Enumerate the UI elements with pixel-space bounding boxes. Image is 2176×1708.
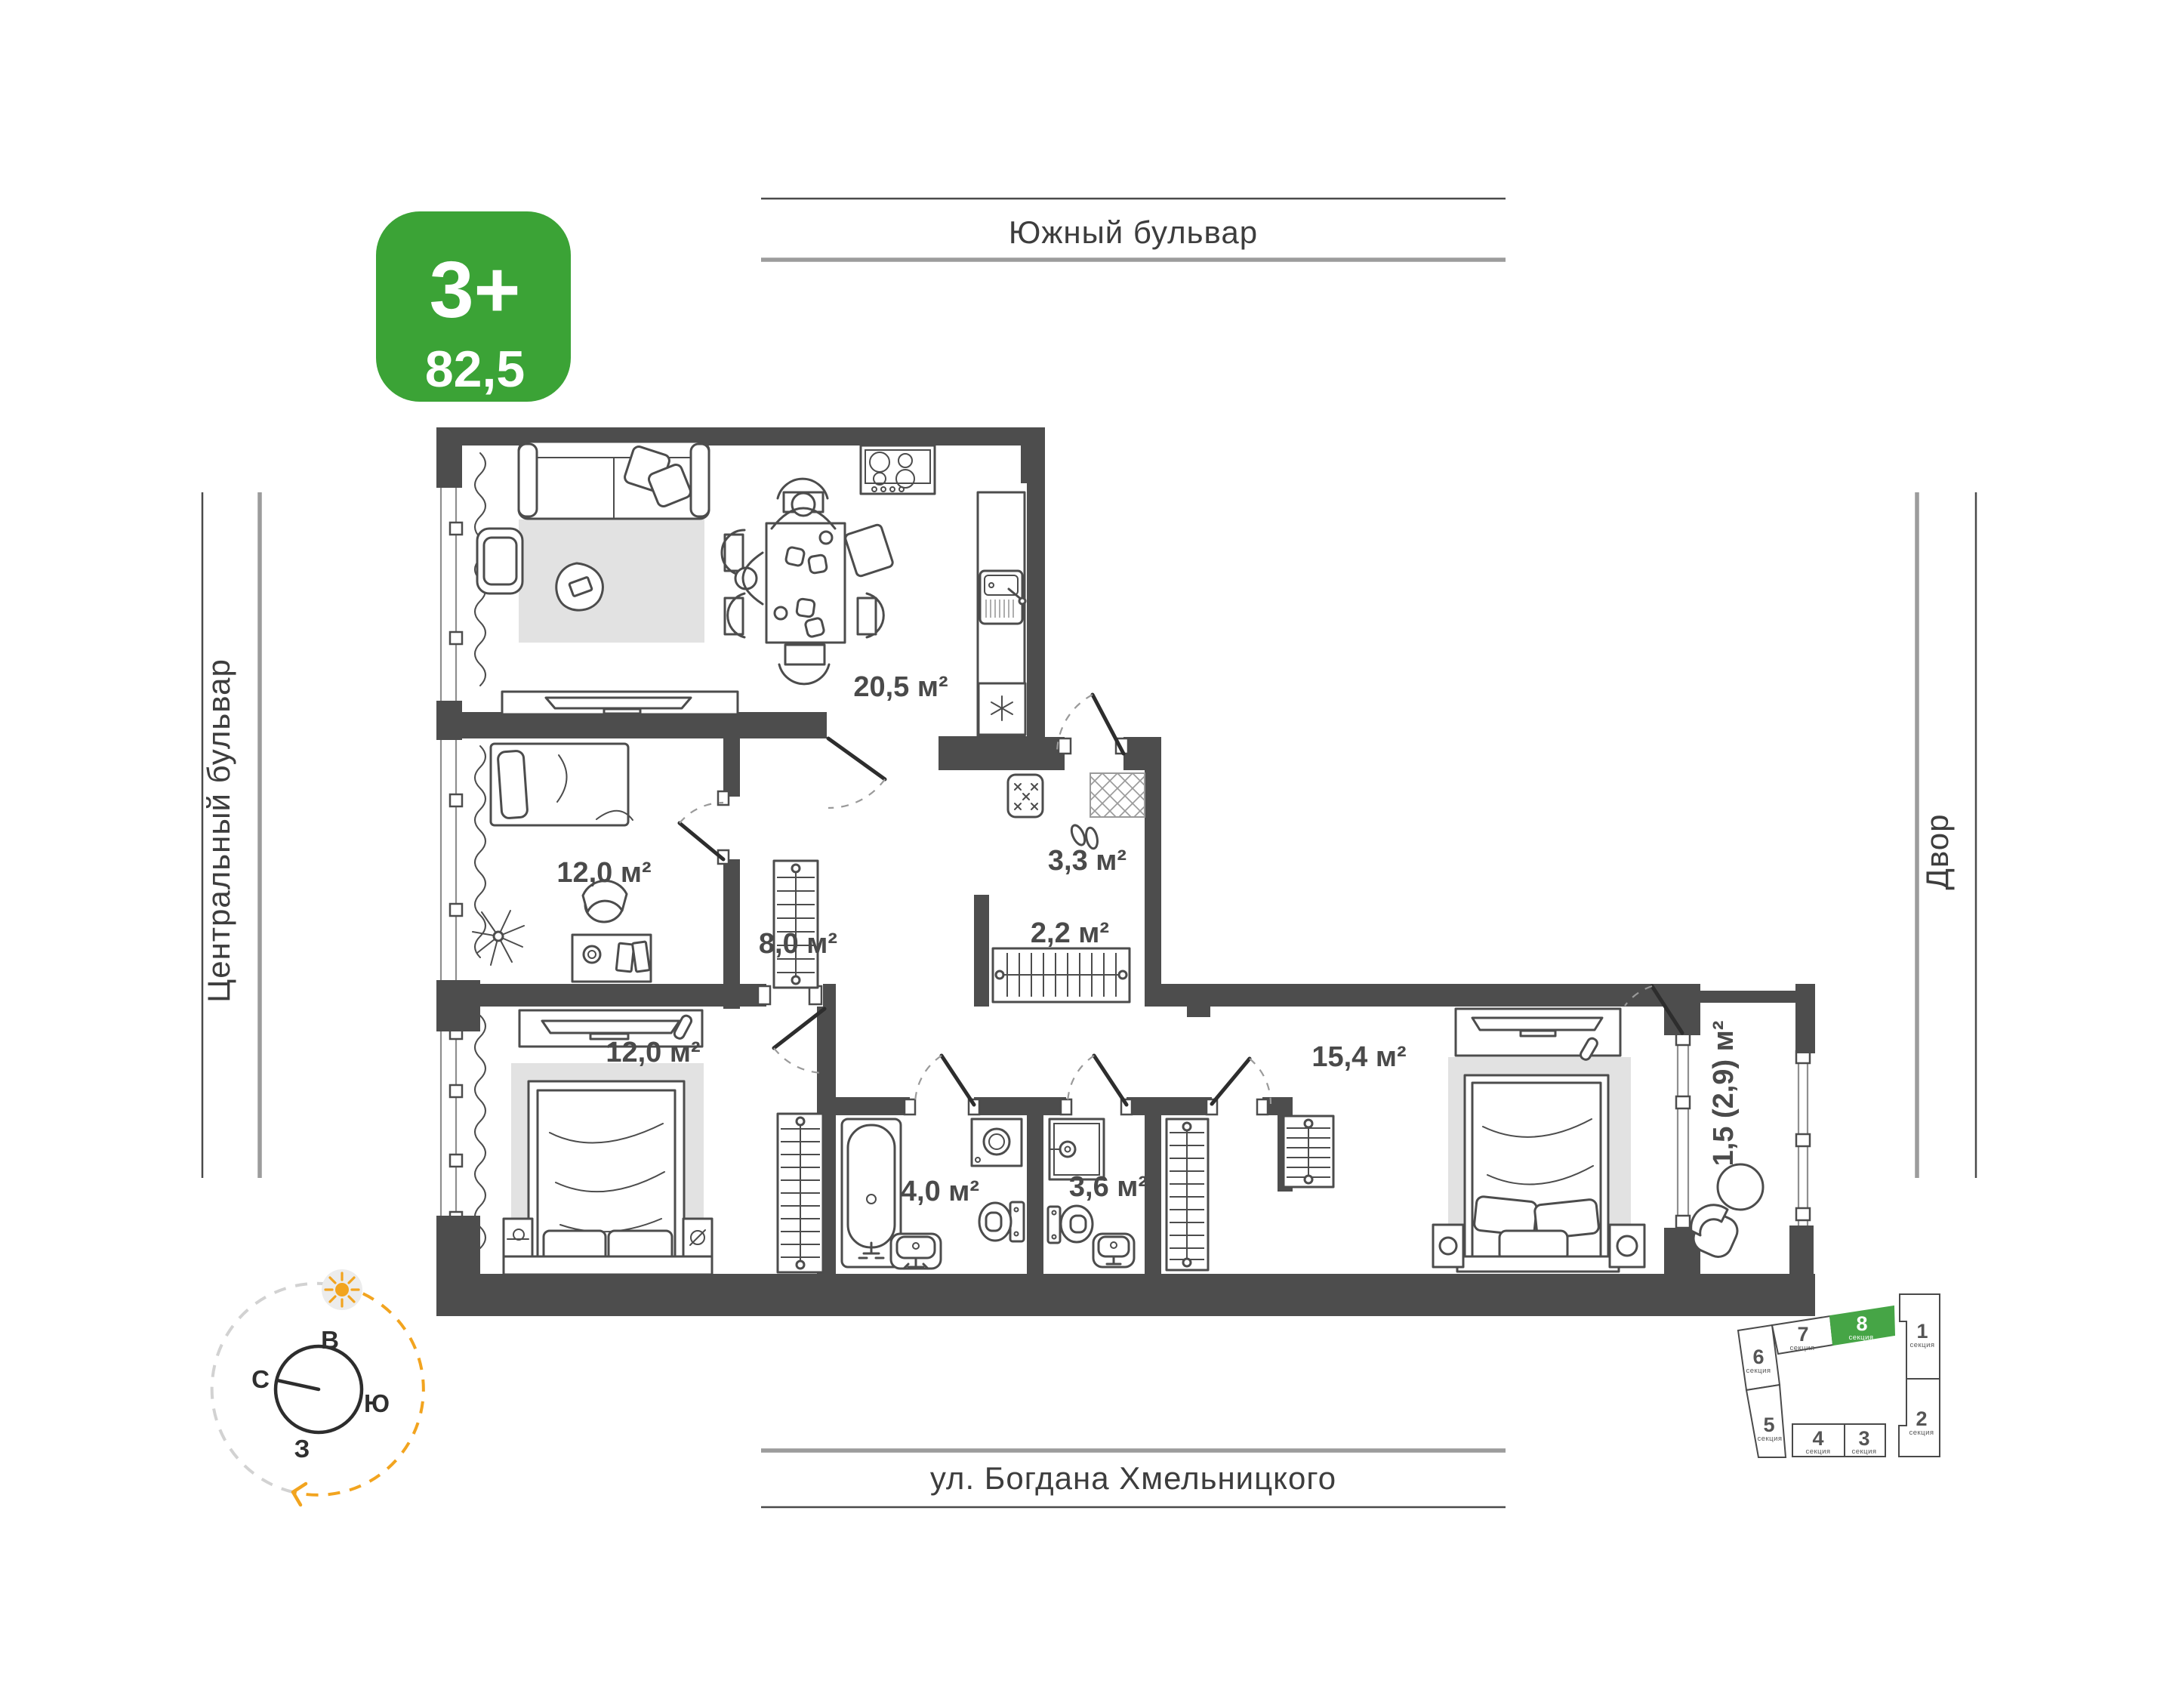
street-right-label: Двор [1919, 813, 1955, 889]
compass-south: Ю [364, 1389, 390, 1417]
pouf-icon [1008, 775, 1043, 817]
room-label-balcony: 1,5 (2,9) м² [1708, 1021, 1740, 1167]
fridge-icon [979, 683, 1025, 735]
apartment-badge: 3+ 82,5 [376, 211, 571, 402]
kitchen-sink-icon [980, 571, 1025, 624]
section-2-number: 2 [1916, 1407, 1927, 1430]
section-3-number: 3 [1858, 1427, 1869, 1450]
living-rug [519, 519, 704, 643]
floor-plan-page: Южный бульвар ул. Богдана Хмельницкого Ц… [0, 0, 2176, 1708]
wardrobe-bedroom2-icon [778, 1114, 823, 1272]
tv-console-living [502, 692, 738, 714]
shower-icon [1049, 1119, 1104, 1179]
street-left-label: Центральный бульвар [201, 658, 236, 1003]
section-1-number: 1 [1916, 1320, 1928, 1343]
section-8-word: секция [1848, 1333, 1873, 1342]
street-top-label: Южный бульвар [1009, 214, 1258, 250]
section-5-word: секция [1757, 1435, 1782, 1443]
section-8-number: 8 [1856, 1312, 1867, 1335]
section-2-word: секция [1909, 1429, 1934, 1437]
double-bed-bedroom2 [504, 1081, 712, 1275]
street-top: Южный бульвар [761, 199, 1506, 260]
street-bottom-label: ул. Богдана Хмельницкого [930, 1460, 1336, 1496]
section-3-word: секция [1851, 1447, 1876, 1456]
section-4-number: 4 [1812, 1427, 1823, 1450]
compass-north: С [251, 1365, 270, 1393]
coffee-table-icon [556, 563, 603, 610]
section-6-number: 6 [1752, 1346, 1764, 1368]
street-right: Двор [1917, 492, 1976, 1178]
badge-area-value: 82,5 [425, 341, 525, 398]
section-6-word: секция [1746, 1367, 1771, 1375]
room-label-wardrobe: 2,2 м² [1031, 917, 1109, 949]
stove-icon [861, 445, 935, 494]
street-bottom: ул. Богдана Хмельницкого [761, 1451, 1506, 1507]
dining-table-icon [722, 479, 894, 684]
room-label-bedroom-1: 12,0 м² [556, 857, 651, 889]
section-1-word: секция [1909, 1341, 1934, 1349]
sun-icon [322, 1269, 362, 1310]
balcony-furniture [1689, 1164, 1763, 1261]
room-label-bedroom-3: 15,4 м² [1311, 1041, 1406, 1073]
room-label-kitchen-living: 20,5 м² [853, 671, 948, 703]
single-bed-icon [491, 744, 633, 825]
floor-plan: 20,5 м² 12,0 м² 12,0 м² 8,0 м² 3,3 м² 2,… [436, 427, 1815, 1316]
toilet-bathroom-icon [979, 1202, 1024, 1241]
sink-shower-room-icon [1093, 1234, 1134, 1267]
room-label-shower-room: 3,6 м² [1069, 1171, 1148, 1203]
wardrobe-bedroom3-icon [1284, 1116, 1333, 1187]
sink-bathroom-icon [891, 1234, 941, 1269]
badge-room-type: 3+ [430, 245, 521, 335]
section-map: 6 секция 5 секция 7 секция 8 секция 1 се… [1738, 1294, 1940, 1457]
compass-east: В [321, 1326, 339, 1354]
toilet-shower-room-icon [1048, 1206, 1093, 1243]
room-label-entry: 3,3 м² [1048, 845, 1127, 877]
window-wall-left [441, 427, 462, 1274]
sofa-icon [519, 442, 709, 519]
tv-console-bedroom3 [1456, 1009, 1620, 1061]
room-label-bedroom-2: 12,0 м² [606, 1037, 700, 1068]
compass: В Ю З С [212, 1269, 424, 1505]
room-label-bathroom: 4,0 м² [901, 1176, 979, 1207]
room-label-hallway: 8,0 м² [759, 928, 837, 960]
armchair-icon [477, 529, 522, 593]
doormat-icon [1090, 773, 1145, 817]
wardrobe-nook-icon [1167, 1119, 1208, 1270]
street-left: Центральный бульвар [201, 492, 260, 1178]
desk-icon [572, 935, 651, 982]
section-7-word: секция [1789, 1344, 1814, 1352]
wardrobe-hall-icon [774, 861, 818, 988]
wardrobe-rail-2-2 [993, 948, 1130, 1002]
washing-machine-icon [972, 1119, 1022, 1166]
section-5-number: 5 [1763, 1414, 1774, 1436]
compass-west: З [294, 1435, 310, 1463]
section-7-number: 7 [1797, 1323, 1808, 1346]
section-4-word: секция [1805, 1447, 1830, 1456]
